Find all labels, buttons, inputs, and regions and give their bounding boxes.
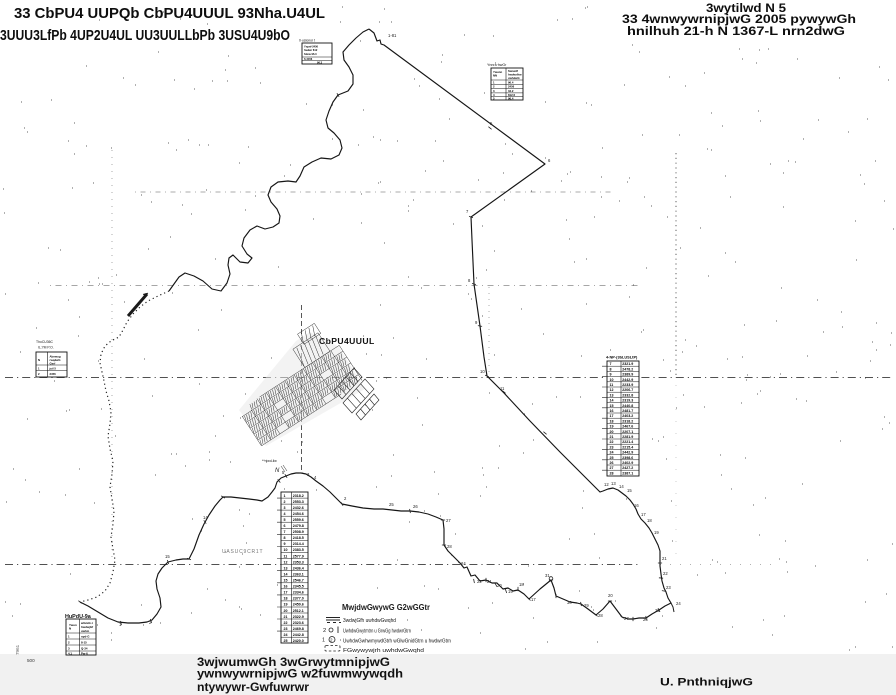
- svg-text:23: 23: [666, 585, 671, 590]
- svg-text:22: 22: [477, 579, 482, 584]
- svg-text:2318.2: 2318.2: [622, 419, 633, 423]
- svg-text:2546.7: 2546.7: [293, 579, 304, 583]
- svg-text:ntywywr-Gwfuwrwr: ntywywr-Gwfuwrwr: [197, 680, 309, 694]
- svg-text:12: 12: [610, 388, 614, 392]
- svg-text:2389.9: 2389.9: [622, 373, 633, 377]
- svg-text:19: 19: [284, 603, 288, 607]
- svg-text:2553.3: 2553.3: [293, 500, 304, 504]
- svg-text:N: N: [69, 627, 71, 631]
- svg-text:Ynnra·hwGr: Ynnra·hwGr: [487, 63, 507, 67]
- svg-text:15: 15: [627, 488, 632, 493]
- svg-text:MwjdwGwywG G2wGGtr: MwjdwGwywG G2wGGtr: [342, 603, 430, 612]
- svg-text:9: 9: [284, 542, 286, 546]
- svg-text:2418.5: 2418.5: [293, 536, 304, 540]
- svg-text:2398.6: 2398.6: [622, 456, 633, 460]
- svg-text:2420.0: 2420.0: [293, 639, 304, 643]
- svg-text:20: 20: [608, 593, 613, 598]
- svg-text:18: 18: [610, 419, 614, 423]
- svg-text:N: N: [38, 358, 40, 362]
- svg-text:18: 18: [519, 582, 524, 587]
- svg-text:24: 24: [461, 561, 466, 566]
- svg-text:N: N: [275, 468, 280, 474]
- svg-text:2436.4: 2436.4: [293, 566, 304, 570]
- svg-text:2363.1: 2363.1: [293, 572, 304, 576]
- svg-text:2440.8: 2440.8: [622, 404, 633, 408]
- svg-text:2221.4: 2221.4: [622, 440, 633, 444]
- svg-text:23: 23: [284, 627, 288, 631]
- svg-text:26: 26: [610, 461, 614, 465]
- svg-text:6: 6: [284, 524, 286, 528]
- svg-text:96.4: 96.4: [508, 96, 514, 100]
- svg-text:20: 20: [610, 430, 614, 434]
- svg-text:2: 2: [323, 628, 326, 634]
- svg-text:Q·34: Q·34: [81, 647, 88, 651]
- svg-text:10: 10: [610, 378, 614, 382]
- svg-text:1: 1: [284, 494, 286, 498]
- svg-text:26: 26: [643, 617, 648, 622]
- svg-text:2206.7: 2206.7: [622, 388, 633, 392]
- svg-text:IL:7M P.O.: IL:7M P.O.: [38, 346, 54, 350]
- svg-text:21: 21: [284, 615, 288, 619]
- svg-text:33 4wnwywrnipjwG 2005 pywywGh: 33 4wnwywrnipjwG 2005 pywywGh: [622, 14, 856, 26]
- svg-text:16: 16: [634, 503, 639, 508]
- svg-text:17: 17: [641, 512, 646, 517]
- svg-text:15: 15: [165, 554, 170, 559]
- svg-text:25: 25: [655, 608, 660, 613]
- svg-text:2334.6: 2334.6: [293, 591, 304, 595]
- svg-text:31: 31: [545, 573, 550, 578]
- svg-text:29: 29: [584, 603, 589, 608]
- svg-text:14: 14: [284, 572, 288, 576]
- svg-text:2402.9: 2402.9: [622, 461, 633, 465]
- svg-text:2481.7: 2481.7: [622, 409, 633, 413]
- svg-text:8: 8: [610, 367, 612, 371]
- svg-text:15: 15: [610, 404, 614, 408]
- svg-text:2387.1: 2387.1: [622, 471, 633, 475]
- svg-text:ywnwywrnipjwG w2fuwmwywqdh: ywnwywrnipjwG w2fuwmwywqdh: [197, 667, 403, 681]
- svg-text:uwhdwG: uwhdwG: [508, 76, 520, 80]
- svg-text:13: 13: [611, 481, 616, 486]
- svg-text:2314.4: 2314.4: [293, 542, 304, 546]
- svg-text:18: 18: [284, 597, 288, 601]
- svg-text:2403.2: 2403.2: [622, 414, 633, 418]
- svg-text:12: 12: [284, 560, 288, 564]
- svg-text:FGwywywjrh uwhdwGwqhd: FGwywywjrh uwhdwGwqhd: [343, 648, 424, 654]
- svg-text:5: 5: [284, 518, 286, 522]
- svg-text:27: 27: [446, 518, 451, 523]
- svg-text:2: 2: [330, 638, 333, 643]
- svg-text:14: 14: [203, 515, 208, 520]
- svg-text:7: 7: [610, 362, 612, 366]
- svg-text:2319.3: 2319.3: [622, 399, 633, 403]
- svg-text:13: 13: [284, 566, 288, 570]
- svg-text:14: 14: [610, 399, 614, 403]
- svg-text:2377.0: 2377.0: [293, 597, 304, 601]
- svg-text:500: 500: [27, 658, 35, 663]
- svg-text:NN: NN: [493, 74, 497, 78]
- svg-text:27: 27: [610, 466, 614, 470]
- svg-text:2450.6: 2450.6: [293, 603, 304, 607]
- svg-text:3: 3: [284, 506, 286, 510]
- svg-text:2427.2: 2427.2: [622, 466, 633, 470]
- svg-text:uwhd·: uwhd·: [81, 629, 90, 633]
- svg-text:2: 2: [284, 500, 286, 504]
- svg-text:4.1: 4.1: [68, 651, 72, 655]
- svg-text:2478.2: 2478.2: [622, 367, 633, 371]
- svg-text:7: 7: [284, 530, 286, 534]
- svg-text:2233.9: 2233.9: [622, 383, 633, 387]
- svg-text:16: 16: [284, 585, 288, 589]
- svg-text:24: 24: [676, 601, 681, 606]
- svg-text:2432.6: 2432.6: [293, 506, 304, 510]
- svg-text:9: 9: [610, 373, 612, 377]
- svg-text:10: 10: [284, 548, 288, 552]
- svg-text:25: 25: [284, 639, 288, 643]
- svg-text:UwhdwGwytmtrn u GrwGg hwdwrGtr: UwhdwGwytmtrn u GrwGg hwdwrGtrn: [343, 629, 411, 635]
- svg-text:27: 27: [624, 616, 629, 621]
- svg-text:24: 24: [284, 633, 288, 637]
- svg-text:96.3: 96.3: [317, 61, 323, 65]
- svg-text:juil 5: juil 5: [49, 367, 57, 371]
- svg-text:14: 14: [619, 484, 624, 489]
- svg-text:17: 17: [610, 414, 614, 418]
- svg-text:2469.8: 2469.8: [293, 627, 304, 631]
- svg-text:11: 11: [284, 554, 288, 558]
- svg-text:25: 25: [610, 456, 614, 460]
- svg-text:24: 24: [610, 451, 614, 455]
- svg-text:13: 13: [610, 393, 614, 397]
- svg-text:15: 15: [284, 579, 288, 583]
- svg-text:hnilhuh 21-h N 1367-L nrn2dwG: hnilhuh 21-h N 1367-L nrn2dwG: [627, 26, 845, 38]
- svg-text:UASUC9CR1T: UASUC9CR1T: [222, 549, 263, 555]
- svg-text:2456: 2456: [50, 372, 57, 376]
- svg-text:2454.6: 2454.6: [293, 512, 304, 516]
- svg-text:2321.9: 2321.9: [622, 362, 633, 366]
- svg-text:28: 28: [598, 613, 603, 618]
- svg-text:20: 20: [284, 609, 288, 613]
- svg-text:21: 21: [610, 435, 614, 439]
- svg-text:hwdwr 812: hwdwr 812: [304, 48, 318, 52]
- svg-text:2508.9: 2508.9: [293, 530, 304, 534]
- svg-text:HuPdU-9a: HuPdU-9a: [65, 614, 92, 620]
- svg-text:22: 22: [663, 571, 668, 576]
- svg-text:2318.2: 2318.2: [293, 494, 304, 498]
- svg-text:21: 21: [662, 556, 667, 561]
- svg-text:2323.6: 2323.6: [293, 621, 304, 625]
- svg-text:S 2456: S 2456: [304, 57, 313, 61]
- svg-text:7961: 7961: [15, 644, 20, 655]
- svg-text:3UUU3LfPb 4UP2U4UL UU3UULLbPb: 3UUU3LfPb 4UP2U4UL UU3UULLbPb 3USU4U9bO: [0, 27, 290, 44]
- svg-text:26: 26: [413, 504, 418, 509]
- svg-text:2383.5: 2383.5: [293, 548, 304, 552]
- svg-text:19: 19: [508, 589, 513, 594]
- svg-text:19: 19: [654, 530, 659, 535]
- svg-text:28: 28: [610, 471, 614, 475]
- svg-text:npd·G: npd·G: [81, 635, 90, 639]
- svg-text:4·NP·(3bLUSLtP): 4·NP·(3bLUSLtP): [606, 355, 638, 360]
- svg-text:11: 11: [610, 383, 614, 387]
- svg-text:2281.9: 2281.9: [622, 435, 633, 439]
- svg-text:2577.9: 2577.9: [293, 554, 304, 558]
- svg-text:33 CbPU4 UUPQb CbPU4UUUL 93Nha: 33 CbPU4 UUPQb CbPU4UUUL 93Nha.U4UL: [14, 5, 325, 22]
- svg-text:Ynpnf-2456: Ynpnf-2456: [304, 45, 319, 49]
- svg-text:2215.4: 2215.4: [622, 445, 633, 449]
- svg-text:2353.3: 2353.3: [293, 560, 304, 564]
- svg-text:17: 17: [284, 591, 288, 595]
- svg-text:22: 22: [610, 440, 614, 444]
- svg-text:19: 19: [610, 425, 614, 429]
- svg-text:8·15: 8·15: [81, 641, 87, 645]
- svg-text:Sdew 96.3: Sdew 96.3: [304, 52, 317, 56]
- svg-text:2207.1: 2207.1: [622, 430, 633, 434]
- svg-text:21: 21: [487, 579, 492, 584]
- svg-text:0·usionor t: 0·usionor t: [299, 39, 315, 43]
- svg-text:**njwd-ilw: **njwd-ilw: [262, 459, 277, 463]
- svg-text:U. PnthniqjwG: U. PnthniqjwG: [660, 677, 753, 689]
- svg-text:2442.8: 2442.8: [293, 633, 304, 637]
- svg-text:2442.9: 2442.9: [622, 378, 633, 382]
- svg-text:2479.8: 2479.8: [293, 524, 304, 528]
- svg-text:10: 10: [480, 369, 485, 374]
- svg-text:Pw·6: Pw·6: [81, 651, 88, 655]
- svg-text:ThoCU36C: ThoCU36C: [36, 340, 54, 344]
- svg-text:28: 28: [447, 544, 452, 549]
- svg-text:UwhdwGwhwmywdGtrh wGlwGnidGtrn: UwhdwGwhwmywdGtrh wGlwGnidGtrn u hwdwrGt…: [343, 639, 451, 645]
- svg-text:1: 1: [322, 638, 325, 644]
- svg-text:Gerf: Gerf: [50, 362, 56, 366]
- svg-text:12: 12: [604, 482, 609, 487]
- svg-text:17: 17: [531, 597, 536, 602]
- svg-text:25: 25: [389, 502, 394, 507]
- svg-text:18: 18: [647, 518, 652, 523]
- svg-text:16: 16: [610, 409, 614, 413]
- svg-text:4: 4: [284, 512, 286, 516]
- svg-text:2322.9: 2322.9: [293, 615, 304, 619]
- svg-text:23: 23: [610, 445, 614, 449]
- svg-text:2345.5: 2345.5: [293, 585, 304, 589]
- svg-text:2512.1: 2512.1: [293, 609, 304, 613]
- svg-text:22: 22: [284, 621, 288, 625]
- svg-text:2332.8: 2332.8: [622, 393, 633, 397]
- svg-text:11: 11: [500, 386, 505, 391]
- svg-text:1-81: 1-81: [388, 33, 397, 38]
- svg-text:20: 20: [497, 583, 502, 588]
- svg-text:30: 30: [567, 600, 572, 605]
- svg-text:8: 8: [284, 536, 286, 540]
- svg-text:3wdwjGfh uwhdwGwqhd: 3wdwjGfh uwhdwGwqhd: [343, 618, 396, 624]
- svg-text:2559.6: 2559.6: [293, 518, 304, 522]
- svg-text:CbPU4UUUL: CbPU4UUUL: [319, 336, 375, 346]
- svg-text:2467.6: 2467.6: [622, 425, 633, 429]
- svg-text:2442.9: 2442.9: [622, 451, 633, 455]
